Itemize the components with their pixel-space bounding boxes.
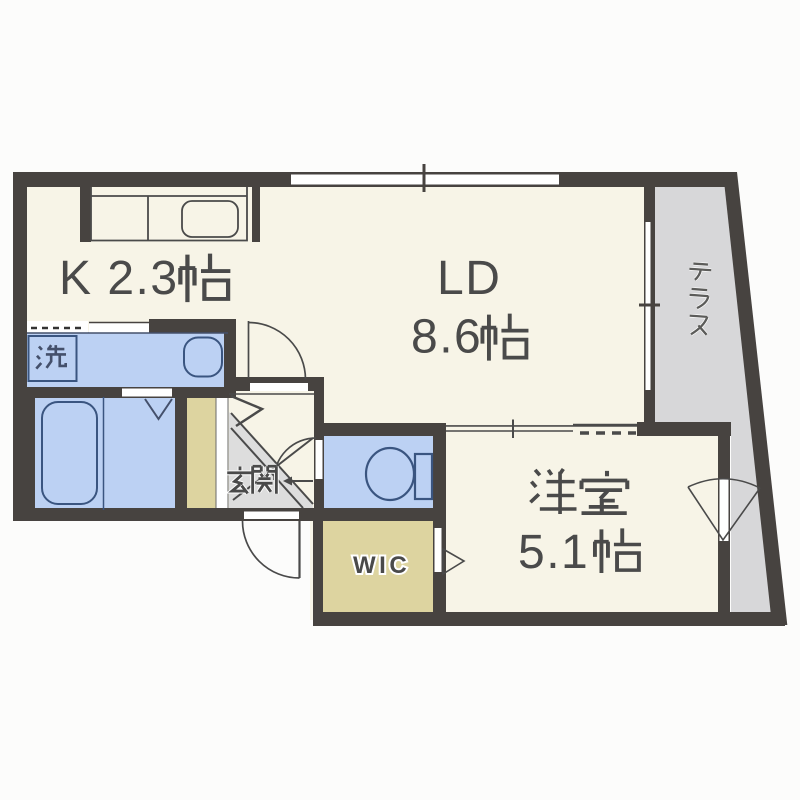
svg-text:LD: LD (437, 252, 501, 305)
svg-text:8.6: 8.6 (411, 311, 482, 364)
svg-text:WIC: WIC (353, 552, 410, 579)
svg-text:K 2.3: K 2.3 (59, 252, 179, 305)
svg-text:5.1: 5.1 (518, 526, 589, 579)
